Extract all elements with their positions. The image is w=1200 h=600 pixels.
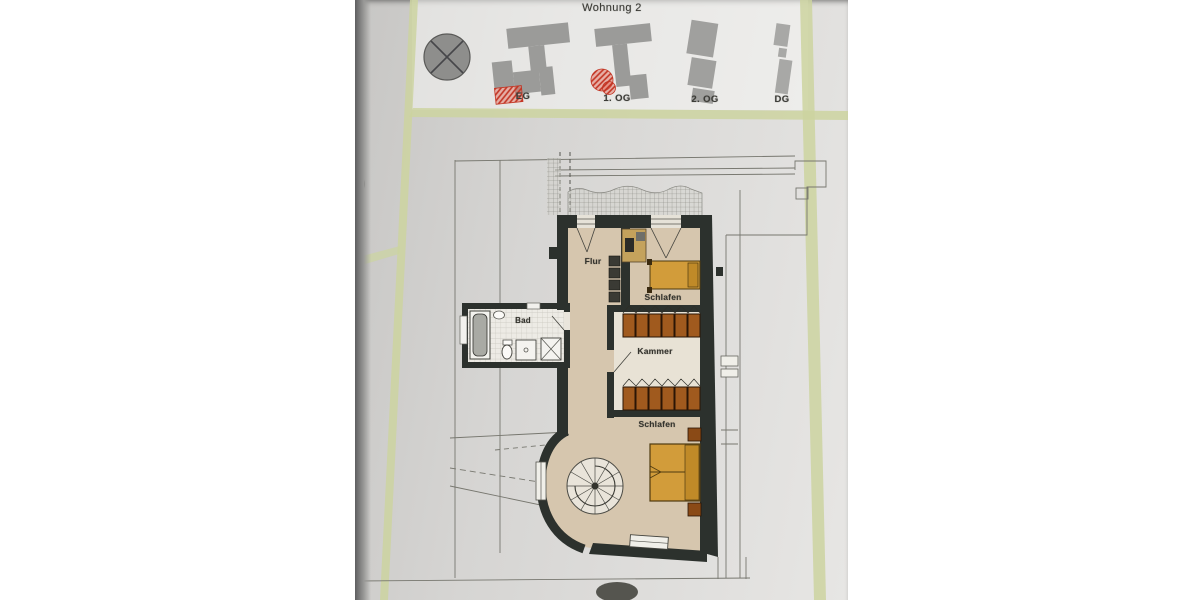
floor-label-1og: 1. OG (603, 93, 630, 104)
floor-label-dg: DG (774, 94, 789, 105)
floor-label-eg: EG (516, 91, 531, 102)
floorplan-drawing (355, 0, 848, 600)
sink (494, 311, 505, 319)
wardrobe-row-upper (623, 314, 700, 337)
keyplan-eg (488, 22, 575, 104)
red-hatch-marker (591, 69, 616, 95)
tree-compass-icon (424, 34, 470, 80)
bathroom (460, 303, 570, 368)
room-label-kammer: Kammer (637, 346, 672, 356)
wardrobe-row-lower (623, 387, 700, 410)
photo-edge-shadow (355, 0, 371, 600)
room-label-schlafen-lower: Schlafen (638, 419, 675, 429)
bottom-window (630, 535, 669, 550)
keyplan-dg (767, 23, 797, 94)
room-label-bad: Bad (515, 316, 531, 325)
nightstand (688, 503, 701, 516)
desk-chair (625, 238, 634, 252)
floorplan-photo: Wohnung 2 EG 1. OG 2. OG DG Flur Bad Sch… (355, 0, 848, 600)
page-title: Wohnung 2 (582, 2, 642, 14)
room-label-flur: Flur (585, 256, 602, 266)
spiral-stair (567, 458, 623, 514)
shower (516, 340, 536, 360)
nightstand (688, 428, 701, 441)
terrace-hatch (568, 186, 702, 216)
room-label-schlafen-upper: Schlafen (644, 292, 681, 302)
screenshot: Wohnung 2 EG 1. OG 2. OG DG Flur Bad Sch… (0, 0, 1200, 600)
keyplan-1og (591, 23, 658, 102)
toilet (502, 345, 512, 359)
bed-upper (647, 259, 700, 293)
hatch-strip (547, 158, 561, 215)
photo-shadow-bottom (596, 582, 638, 600)
floor-label-2og: 2. OG (691, 94, 718, 105)
keyplan-2og (679, 20, 725, 104)
